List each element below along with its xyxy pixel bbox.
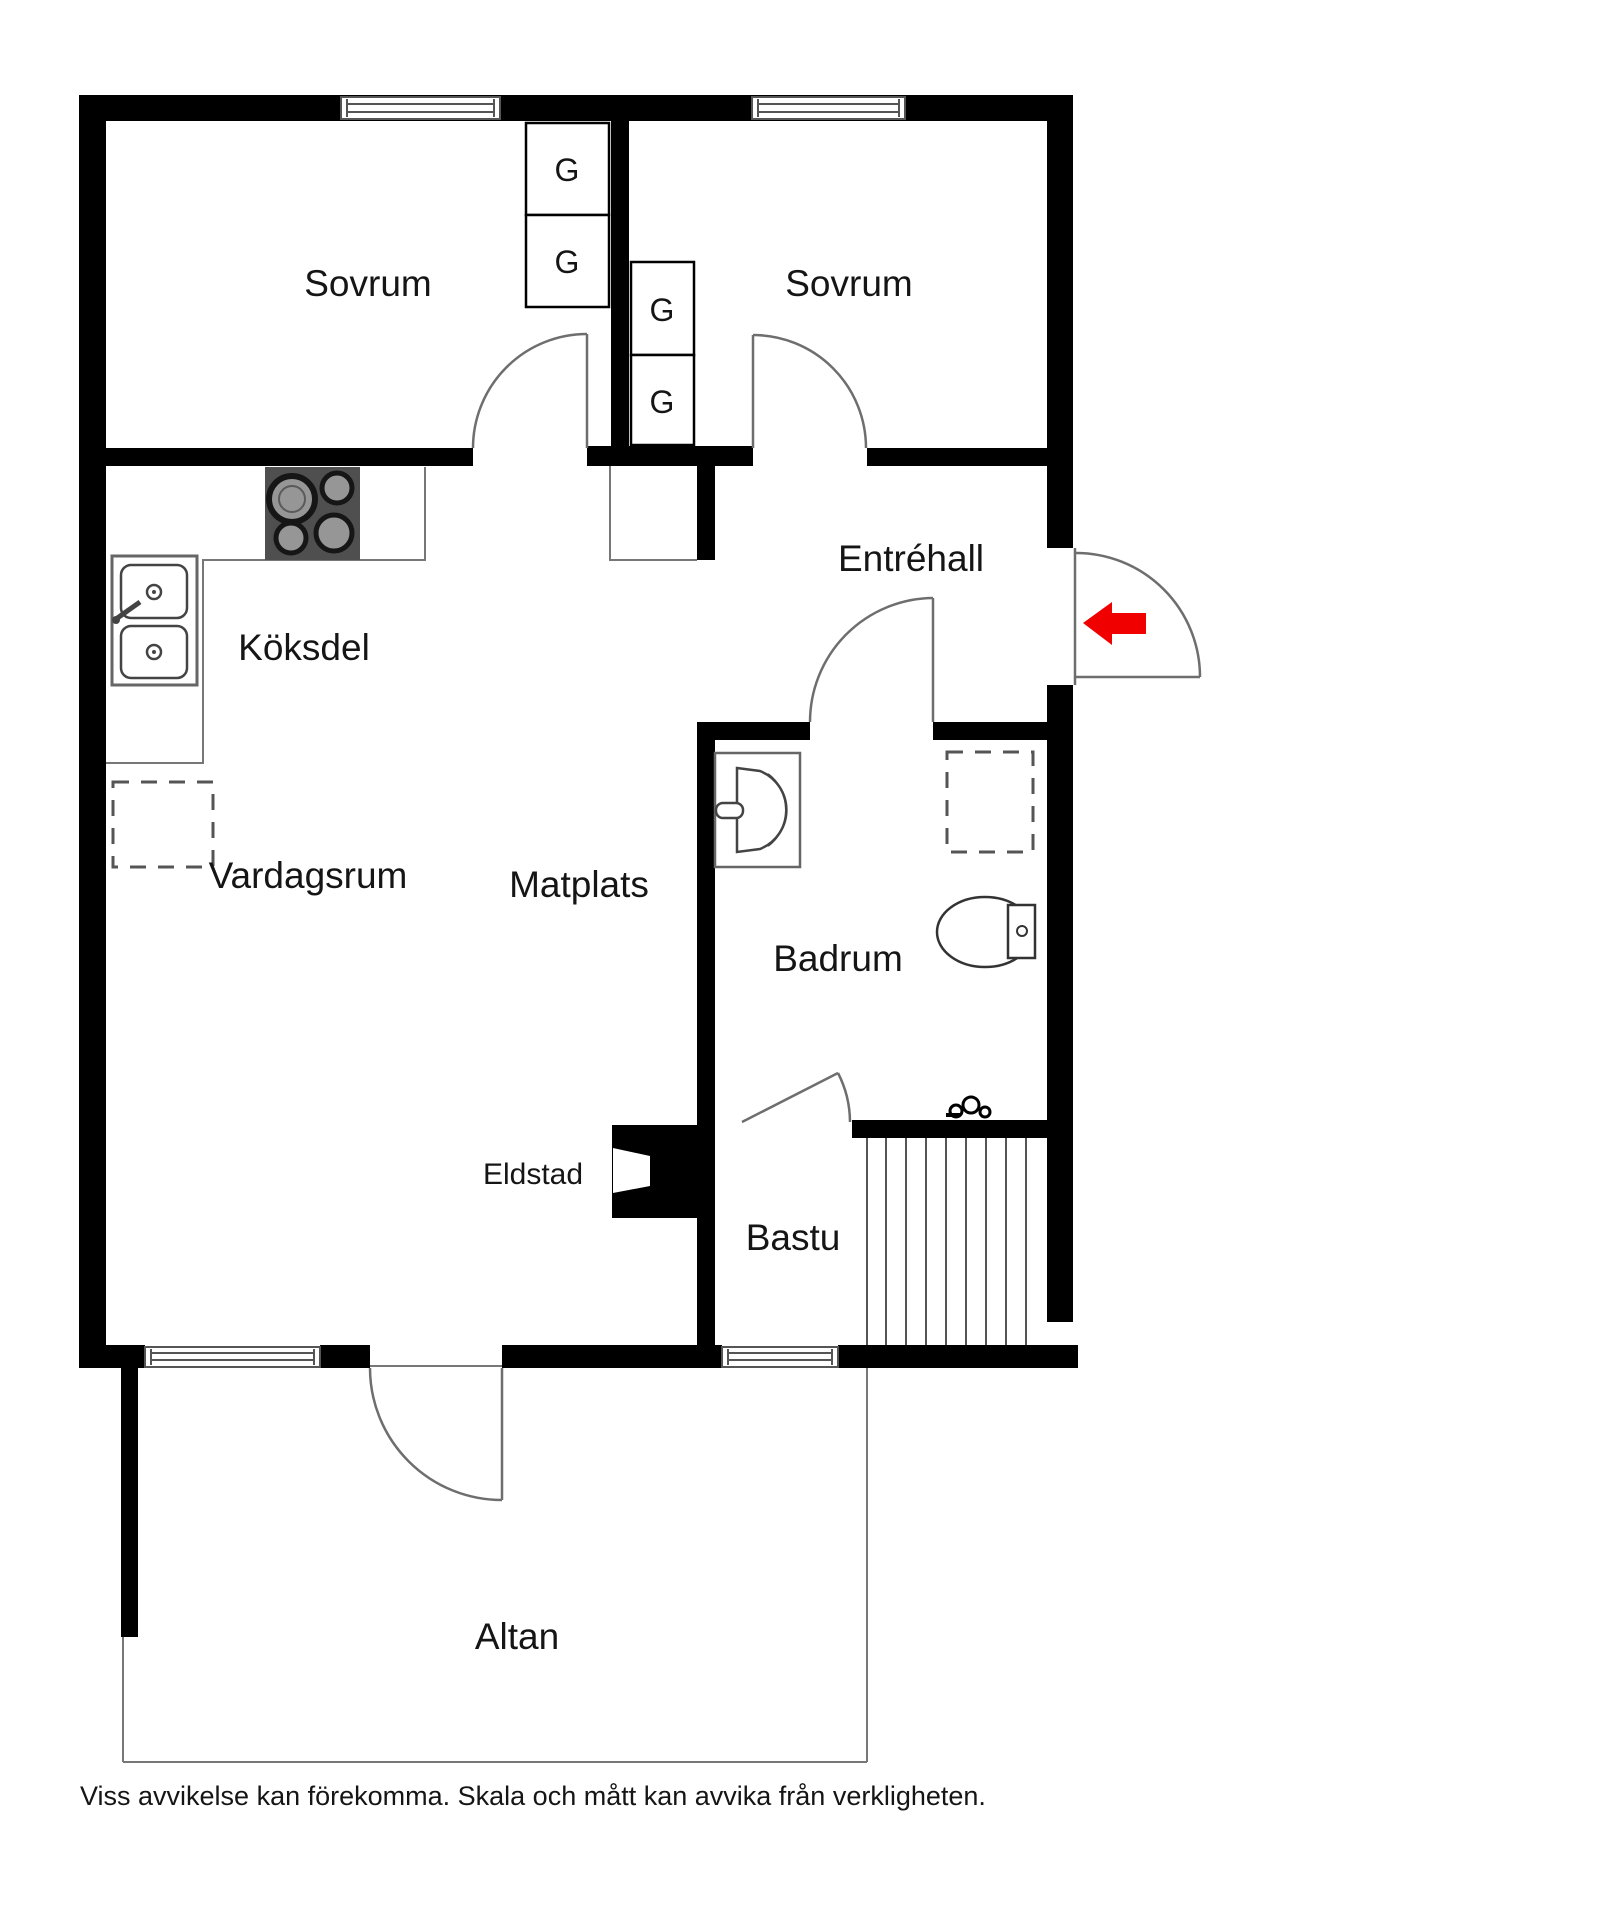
kitchen-appliance-dashed xyxy=(113,782,213,867)
floorplan-page: G G G G xyxy=(0,0,1600,1906)
floorplan-drawing: G G G G xyxy=(0,0,1600,1906)
wardrobe-3-label: G xyxy=(650,292,675,328)
wall-bathroom-living xyxy=(697,722,715,1345)
room-label-dining: Matplats xyxy=(509,864,649,905)
wardrobe-boxes: G G G G xyxy=(526,123,694,445)
kitchen-sink-icon xyxy=(112,556,197,685)
wardrobe-4-label: G xyxy=(650,384,675,420)
terrace-wall-stub xyxy=(121,1368,138,1637)
window-bedroom1 xyxy=(341,97,500,119)
room-label-entry: Entréhall xyxy=(838,538,984,579)
door-sauna xyxy=(742,1073,850,1122)
wall-bottom-1 xyxy=(79,1345,145,1368)
fireplace-icon xyxy=(612,1125,703,1218)
room-label-living: Vardagsrum xyxy=(209,855,408,896)
wall-right-upper xyxy=(1047,95,1073,548)
wall-hall-stub xyxy=(697,463,715,560)
wall-top xyxy=(79,95,1073,121)
wall-bathroom-top-right xyxy=(933,722,1047,740)
window-sauna xyxy=(722,1347,838,1367)
room-label-bedroom2: Sovrum xyxy=(785,263,912,304)
wall-left xyxy=(79,95,106,1368)
door-bedroom2 xyxy=(753,335,866,448)
window-livingroom xyxy=(145,1347,320,1367)
window-bedroom2 xyxy=(752,97,905,119)
wall-bedrooms-bottom-left xyxy=(106,448,473,466)
stairs xyxy=(867,1138,1026,1345)
wall-bottom-3 xyxy=(502,1345,722,1368)
room-label-kitchen: Köksdel xyxy=(238,627,370,668)
entry-arrow-icon xyxy=(1083,602,1146,645)
wardrobe-1-label: G xyxy=(555,152,580,188)
wardrobe-2-label: G xyxy=(555,244,580,280)
wall-bottom-4 xyxy=(838,1345,1078,1368)
wall-right-lower xyxy=(1047,685,1073,1322)
wall-sauna-top xyxy=(852,1120,1047,1138)
door-bathroom xyxy=(810,598,933,722)
bathroom-appliance-dashed xyxy=(947,752,1033,852)
terrace-outline xyxy=(121,1368,867,1762)
washbasin-icon xyxy=(715,753,800,867)
door-terrace xyxy=(370,1366,502,1500)
wall-between-bedrooms xyxy=(611,121,629,466)
wall-bottom-2 xyxy=(320,1345,370,1368)
shower-mixer-icon xyxy=(946,1097,990,1117)
wall-bedrooms-bottom-right xyxy=(867,448,1047,466)
toilet-icon xyxy=(937,897,1035,967)
door-bedroom1 xyxy=(473,334,587,448)
room-label-bathroom: Badrum xyxy=(773,938,903,979)
room-label-terrace: Altan xyxy=(475,1616,559,1657)
hall-alcove xyxy=(610,466,697,560)
room-label-sauna: Bastu xyxy=(746,1217,841,1258)
room-label-bedroom1: Sovrum xyxy=(304,263,431,304)
footer-disclaimer: Viss avvikelse kan förekomma. Skala och … xyxy=(80,1781,986,1811)
room-label-fireplace: Eldstad xyxy=(483,1158,583,1191)
stove-icon xyxy=(265,467,360,560)
